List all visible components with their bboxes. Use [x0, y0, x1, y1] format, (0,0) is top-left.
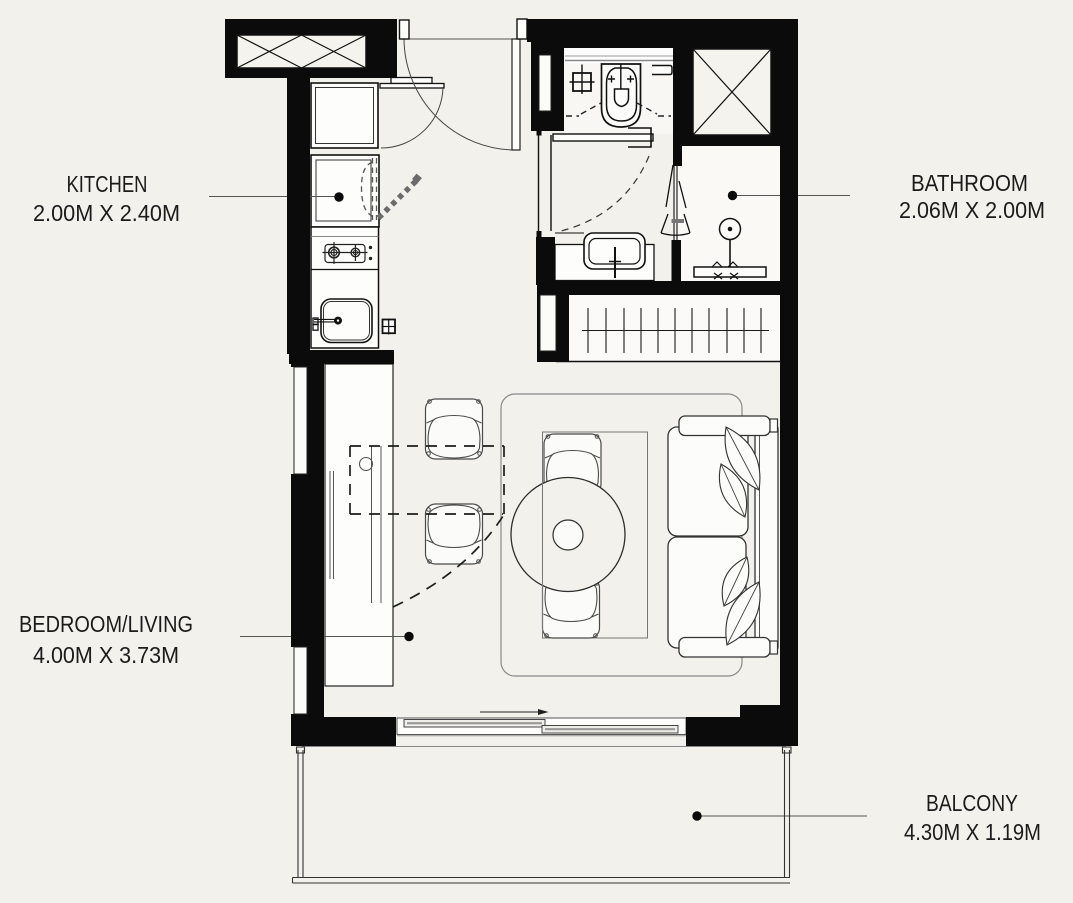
svg-text:BALCONY: BALCONY [926, 790, 1018, 816]
svg-text:4.30M X 1.19M: 4.30M X 1.19M [904, 819, 1041, 845]
svg-text:BATHROOM: BATHROOM [911, 170, 1028, 196]
svg-text:BEDROOM/LIVING: BEDROOM/LIVING [19, 611, 193, 637]
svg-text:2.00M X 2.40M: 2.00M X 2.40M [33, 200, 180, 226]
svg-text:KITCHEN: KITCHEN [67, 171, 148, 197]
svg-text:4.00M X 3.73M: 4.00M X 3.73M [33, 642, 179, 668]
svg-text:2.06M X 2.00M: 2.06M X 2.00M [899, 197, 1045, 223]
